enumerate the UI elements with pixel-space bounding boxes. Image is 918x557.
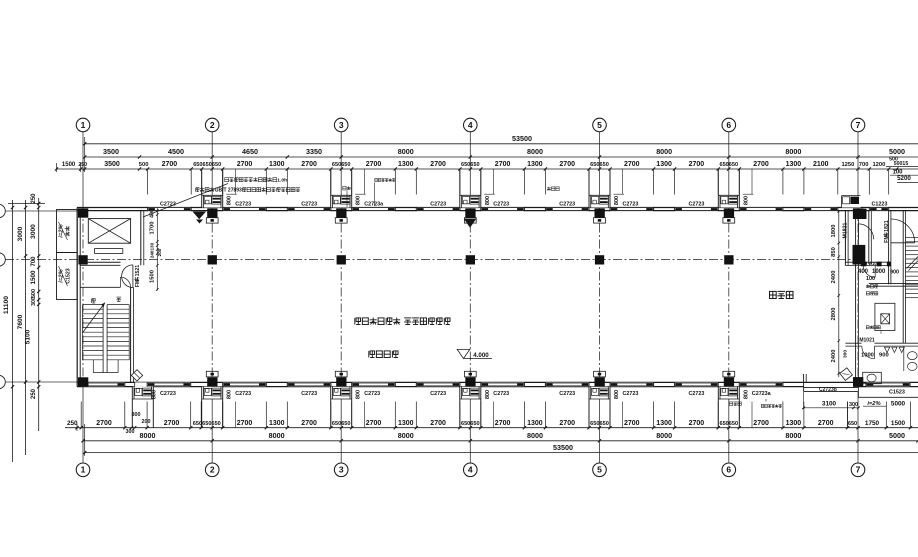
- svg-text:250: 250: [67, 420, 78, 427]
- svg-text:650650: 650650: [590, 162, 609, 168]
- svg-text:650: 650: [848, 421, 857, 427]
- svg-text:2700: 2700: [430, 420, 446, 427]
- svg-text:1300: 1300: [527, 161, 543, 168]
- svg-text:1000: 1000: [861, 353, 874, 359]
- svg-text:8000: 8000: [656, 147, 672, 156]
- svg-text:1250: 1250: [841, 162, 854, 168]
- svg-text:3000: 3000: [30, 224, 37, 239]
- svg-text:850: 850: [831, 247, 837, 257]
- svg-text:M W1021: M W1021: [864, 261, 881, 266]
- svg-text:2400: 2400: [831, 350, 837, 363]
- svg-text:8000: 8000: [527, 431, 543, 440]
- svg-text:650650650: 650650650: [193, 421, 221, 427]
- svg-text:800: 800: [614, 390, 620, 399]
- svg-text:1500: 1500: [149, 270, 155, 283]
- svg-text:8000: 8000: [140, 431, 156, 440]
- svg-text:3350: 3350: [306, 147, 322, 156]
- svg-text:650650: 650650: [332, 162, 351, 168]
- svg-text:C1223: C1223: [872, 202, 888, 208]
- svg-text:2700: 2700: [301, 161, 317, 168]
- svg-text:1300: 1300: [398, 161, 414, 168]
- svg-text:650650: 650650: [461, 162, 480, 168]
- svg-text:300: 300: [849, 402, 858, 408]
- svg-text:800: 800: [227, 196, 233, 205]
- svg-text:250: 250: [78, 162, 87, 168]
- svg-text:650650: 650650: [719, 421, 738, 427]
- svg-text:2700: 2700: [495, 161, 511, 168]
- svg-text:1300: 1300: [398, 420, 414, 427]
- svg-text:5000: 5000: [889, 147, 905, 156]
- svg-text:6: 6: [726, 465, 731, 475]
- svg-text:4: 4: [468, 465, 473, 475]
- svg-text:C2723: C2723: [430, 391, 446, 397]
- svg-text:i=2%: i=2%: [867, 401, 880, 407]
- svg-text:2100: 2100: [813, 161, 829, 168]
- svg-text:4500: 4500: [168, 147, 184, 156]
- svg-text:3: 3: [339, 120, 344, 130]
- svg-text:500: 500: [139, 162, 149, 168]
- svg-text:2700: 2700: [624, 420, 640, 427]
- svg-text:2800: 2800: [831, 308, 837, 321]
- svg-text:1: 1: [81, 465, 86, 475]
- svg-text:C2723a: C2723a: [364, 202, 384, 208]
- svg-text:2700: 2700: [237, 161, 253, 168]
- svg-text:C2723: C2723: [235, 202, 251, 208]
- svg-text:240130: 240130: [149, 242, 154, 258]
- svg-text:3500: 3500: [104, 161, 120, 168]
- svg-text:1821: 1821: [884, 220, 890, 232]
- svg-text:8000: 8000: [398, 147, 414, 156]
- svg-text:4: 4: [468, 120, 473, 130]
- svg-text:8000: 8000: [785, 431, 801, 440]
- svg-text:2700: 2700: [753, 420, 769, 427]
- svg-text:C2723: C2723: [160, 391, 176, 397]
- svg-text:2700: 2700: [689, 420, 705, 427]
- svg-text:2: 2: [210, 120, 215, 130]
- svg-text:2400: 2400: [831, 271, 837, 284]
- svg-text:M1021: M1021: [859, 338, 875, 344]
- svg-text:2700: 2700: [753, 161, 769, 168]
- svg-text:650650: 650650: [461, 421, 480, 427]
- svg-text:2700: 2700: [495, 420, 511, 427]
- svg-text:1521: 1521: [135, 265, 141, 277]
- svg-text:650650: 650650: [332, 421, 351, 427]
- svg-text:2700: 2700: [818, 420, 834, 427]
- svg-text:C2723: C2723: [301, 202, 317, 208]
- svg-text:5200: 5200: [897, 175, 911, 182]
- svg-text:1700: 1700: [149, 222, 155, 235]
- svg-text:1500: 1500: [62, 162, 76, 168]
- svg-text:1800: 1800: [831, 225, 837, 238]
- svg-text:650650: 650650: [719, 162, 738, 168]
- svg-text:50015: 50015: [894, 161, 909, 167]
- svg-text:4.000: 4.000: [473, 352, 489, 359]
- svg-text:C2723b: C2723b: [819, 387, 837, 393]
- svg-text:2: 2: [210, 465, 215, 475]
- svg-text:800: 800: [614, 196, 620, 205]
- svg-text:300: 300: [843, 350, 849, 358]
- svg-text:1.0h: 1.0h: [277, 178, 287, 184]
- svg-text:650650: 650650: [590, 421, 609, 427]
- svg-text:900: 900: [879, 353, 889, 359]
- svg-text:1300: 1300: [656, 420, 672, 427]
- svg-text:C2723: C2723: [235, 391, 251, 397]
- svg-text:C2723: C2723: [623, 391, 639, 397]
- svg-text:C2723: C2723: [689, 202, 705, 208]
- svg-text:5100: 5100: [25, 329, 32, 344]
- svg-text:7600: 7600: [17, 314, 24, 329]
- svg-text:800: 800: [356, 196, 362, 205]
- svg-text:2700: 2700: [162, 161, 178, 168]
- svg-text:900: 900: [890, 270, 899, 276]
- svg-text:53500: 53500: [512, 134, 532, 143]
- svg-text:300: 300: [31, 297, 37, 306]
- svg-text:650650650: 650650650: [193, 162, 221, 168]
- svg-text:100: 100: [866, 276, 875, 282]
- svg-text:C2723: C2723: [493, 202, 509, 208]
- svg-text:4650: 4650: [242, 147, 258, 156]
- svg-text:200: 200: [157, 248, 162, 256]
- svg-text:1: 1: [81, 120, 86, 130]
- svg-text:8000: 8000: [785, 147, 801, 156]
- svg-text:C2723a: C2723a: [752, 391, 772, 397]
- svg-text:1300: 1300: [656, 161, 672, 168]
- svg-text:800: 800: [485, 196, 491, 205]
- svg-text:3000: 3000: [17, 226, 24, 241]
- svg-text:1500: 1500: [30, 270, 37, 285]
- svg-text:800: 800: [132, 412, 141, 418]
- svg-text:C2723: C2723: [301, 391, 317, 397]
- svg-text:i=2%: i=2%: [59, 269, 65, 282]
- svg-text:800: 800: [227, 390, 233, 399]
- svg-text:7: 7: [856, 120, 861, 130]
- svg-text:C2723: C2723: [559, 202, 575, 208]
- svg-text:C2723: C2723: [364, 391, 380, 397]
- svg-text:250: 250: [31, 193, 37, 204]
- svg-text:3100: 3100: [822, 400, 837, 407]
- svg-text:500: 500: [31, 289, 37, 298]
- svg-text:C2723: C2723: [689, 391, 705, 397]
- svg-text:300: 300: [126, 429, 135, 435]
- svg-text:800: 800: [356, 390, 362, 399]
- svg-text:250: 250: [31, 388, 37, 399]
- svg-text:2700: 2700: [430, 161, 446, 168]
- svg-text:GB/T 27893: GB/T 27893: [215, 188, 242, 194]
- svg-text:2700: 2700: [164, 420, 180, 427]
- svg-text:800: 800: [151, 390, 157, 399]
- svg-text:8000: 8000: [527, 147, 543, 156]
- svg-text:C2723: C2723: [493, 391, 509, 397]
- svg-text:1200: 1200: [872, 162, 885, 168]
- svg-text:1000: 1000: [872, 269, 886, 275]
- svg-text:7: 7: [856, 465, 861, 475]
- svg-text:2700: 2700: [366, 420, 382, 427]
- svg-text:400: 400: [858, 269, 869, 275]
- svg-text:2700: 2700: [624, 161, 640, 168]
- svg-text:200: 200: [142, 419, 151, 425]
- svg-text:6: 6: [726, 120, 731, 130]
- svg-text:2700: 2700: [366, 161, 382, 168]
- svg-text:2700: 2700: [559, 420, 575, 427]
- svg-text:3: 3: [339, 465, 344, 475]
- svg-text:i=2%: i=2%: [59, 224, 65, 237]
- svg-text:1300: 1300: [269, 420, 285, 427]
- svg-text:5: 5: [597, 120, 602, 130]
- svg-text:3500: 3500: [103, 147, 119, 156]
- svg-text:5: 5: [597, 465, 602, 475]
- svg-text:C2723: C2723: [160, 202, 176, 208]
- svg-text:53500: 53500: [553, 443, 573, 452]
- svg-text:1500: 1500: [891, 420, 906, 427]
- svg-text:11100: 11100: [3, 296, 10, 314]
- svg-text:8000: 8000: [656, 431, 672, 440]
- svg-text:700: 700: [31, 256, 37, 267]
- svg-text:C1523: C1523: [66, 268, 72, 283]
- svg-text:1300: 1300: [269, 161, 285, 168]
- svg-text:1750: 1750: [865, 420, 880, 427]
- svg-text:2700: 2700: [237, 420, 253, 427]
- svg-text:8000: 8000: [398, 431, 414, 440]
- svg-text:C2723: C2723: [430, 202, 446, 208]
- svg-text:2700: 2700: [301, 420, 317, 427]
- svg-text:2700: 2700: [559, 161, 575, 168]
- svg-text:5000: 5000: [891, 400, 906, 407]
- svg-text:2700: 2700: [96, 420, 112, 427]
- svg-text:1300: 1300: [527, 420, 543, 427]
- svg-text:C2723: C2723: [623, 202, 639, 208]
- svg-text:1300: 1300: [786, 161, 802, 168]
- svg-text:C1523: C1523: [889, 390, 905, 396]
- svg-text:800: 800: [743, 196, 749, 205]
- svg-text:M1821: M1821: [843, 222, 849, 238]
- svg-text:1300: 1300: [786, 420, 802, 427]
- svg-text:8000: 8000: [269, 431, 285, 440]
- svg-text:800: 800: [743, 390, 749, 399]
- svg-text:2700: 2700: [689, 161, 705, 168]
- svg-text:C2723: C2723: [559, 391, 575, 397]
- svg-text:5000: 5000: [889, 431, 905, 440]
- svg-text:700: 700: [859, 162, 869, 168]
- svg-text:800: 800: [485, 390, 491, 399]
